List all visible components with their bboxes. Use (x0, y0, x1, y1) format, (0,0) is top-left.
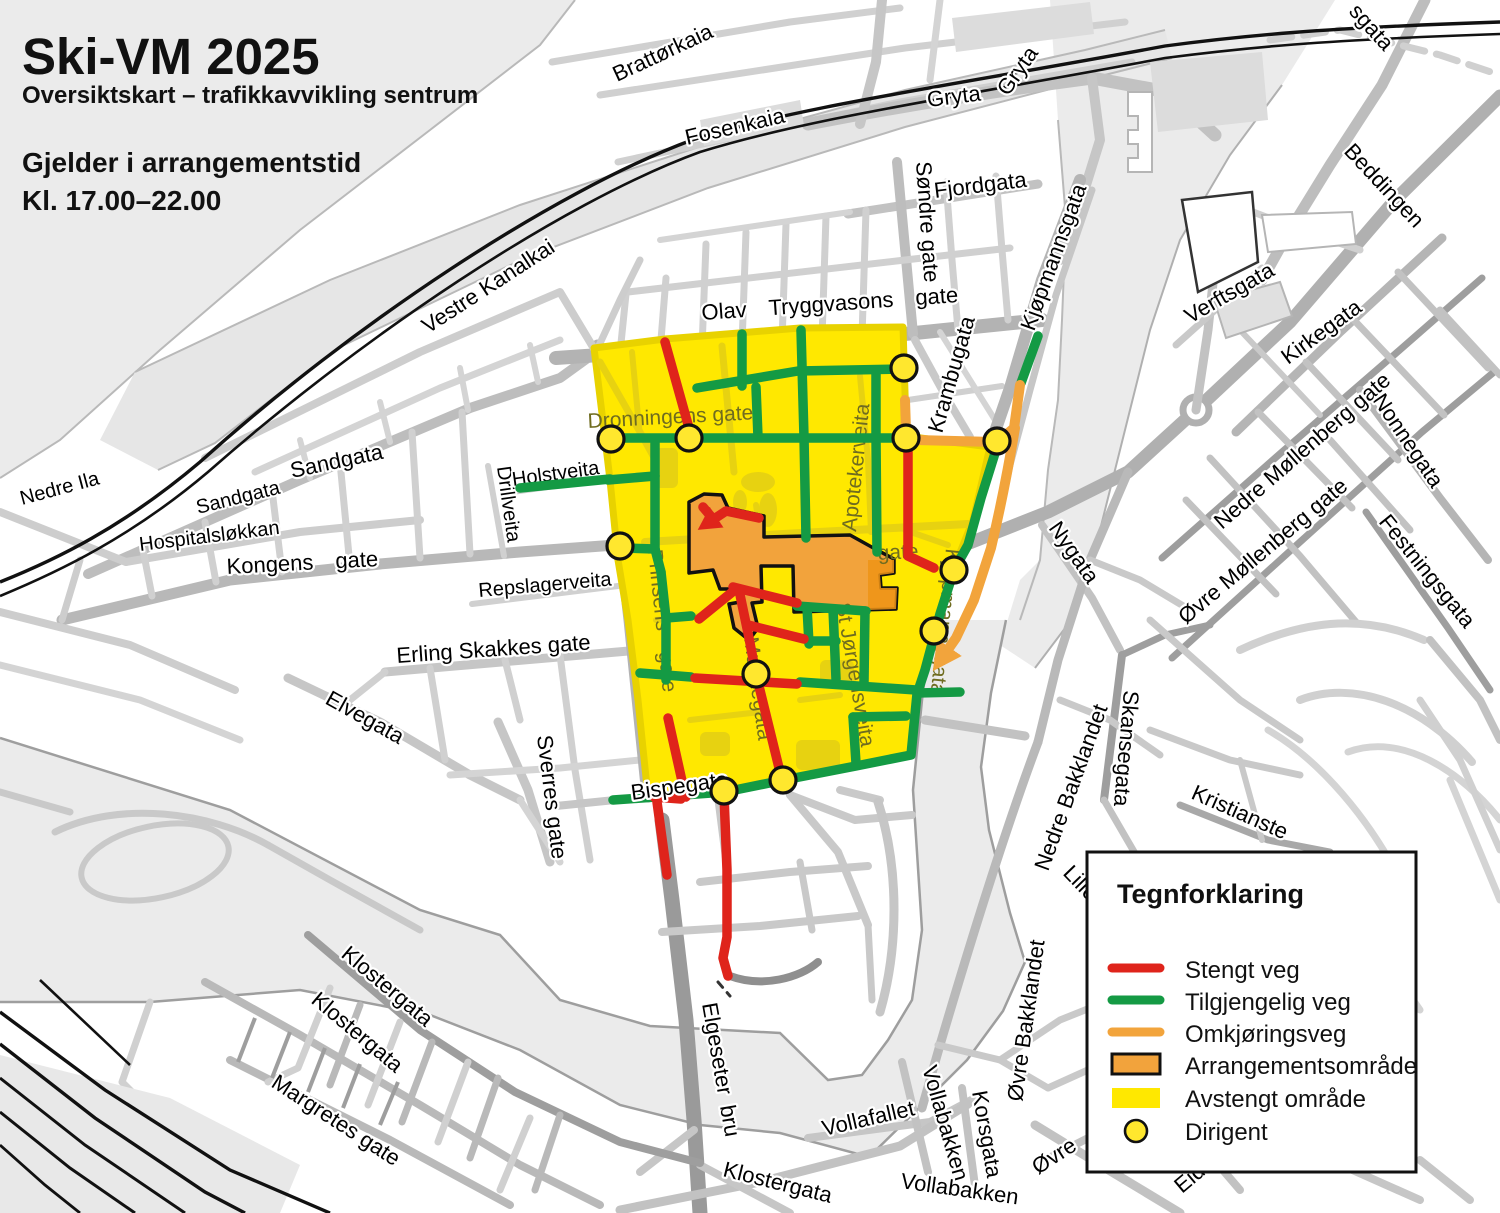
svg-text:Arrangementsområde: Arrangementsområde (1185, 1053, 1417, 1080)
svg-text:Oversiktskart – trafikkavvikli: Oversiktskart – trafikkavvikling sentrum (22, 82, 478, 109)
svg-text:Gjelder i arrangementstid: Gjelder i arrangementstid (22, 147, 361, 178)
svg-text:Avstengt område: Avstengt område (1185, 1086, 1366, 1113)
svg-text:Stengt veg: Stengt veg (1185, 957, 1300, 984)
svg-text:Ski-VM 2025: Ski-VM 2025 (22, 28, 320, 85)
svg-text:Dirigent: Dirigent (1185, 1119, 1268, 1146)
svg-text:Tilgjengelig veg: Tilgjengelig veg (1185, 989, 1351, 1016)
svg-text:Kl. 17.00–22.00: Kl. 17.00–22.00 (22, 185, 221, 216)
svg-text:Omkjøringsveg: Omkjøringsveg (1185, 1021, 1346, 1048)
svg-text:Tegnforklaring: Tegnforklaring (1117, 879, 1304, 909)
